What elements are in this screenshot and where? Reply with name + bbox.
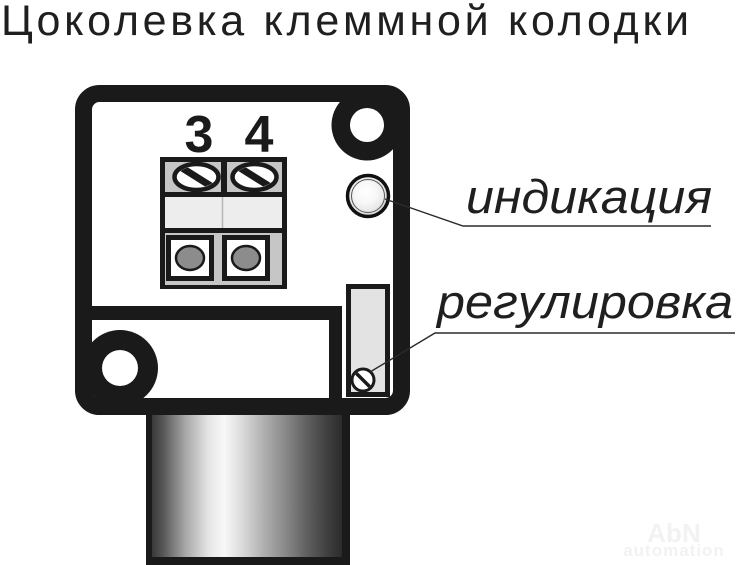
- lower-compartment-side: [329, 306, 342, 400]
- lower-compartment-divider: [84, 306, 342, 320]
- page-title: Цоколевка клеммной колодки: [1, 0, 689, 45]
- watermark-sub: automation: [623, 541, 725, 560]
- wire-hole-3-icon: [176, 246, 204, 270]
- stem-body: [152, 408, 342, 557]
- watermark: AbN automation: [623, 518, 725, 560]
- pinout-diagram: Цоколевка клеммной колодки: [0, 0, 738, 565]
- wire-hole-4-icon: [232, 246, 260, 270]
- mounting-hole-inner: [350, 108, 384, 142]
- terminal-block: [160, 157, 287, 289]
- leader-line-adjustment: [370, 333, 735, 372]
- mounting-hole-top-right: [332, 90, 403, 161]
- led-indicator: [348, 176, 389, 217]
- mounting-hole-bottom-left: [82, 330, 158, 406]
- mounting-hole-inner: [102, 350, 138, 386]
- sensor-stem: [146, 408, 350, 565]
- terminal-mid-row: [165, 197, 282, 228]
- label-indication: индикация: [466, 170, 712, 223]
- terminal-number-3: 3: [185, 106, 214, 164]
- led-ring: [348, 176, 389, 217]
- terminal-number-4: 4: [245, 106, 274, 164]
- pinout-figure: Цоколевка клеммной колодки: [0, 0, 738, 565]
- label-adjustment: регулировка: [435, 275, 733, 328]
